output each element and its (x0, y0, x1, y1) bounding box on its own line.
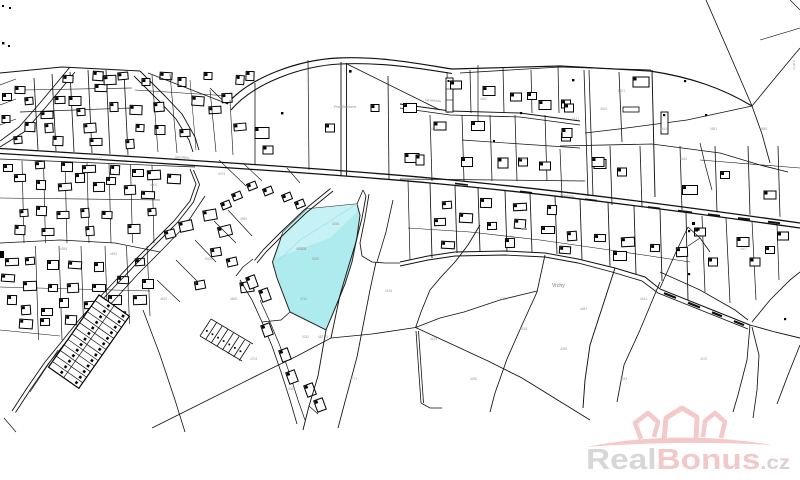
svg-text:5258: 5258 (332, 222, 339, 226)
svg-text:4877/3: 4877/3 (318, 335, 328, 339)
svg-text:Vrchy: Vrchy (552, 283, 565, 289)
svg-text:4296: 4296 (470, 377, 477, 381)
svg-text:4814: 4814 (660, 127, 667, 131)
svg-text:Pod Borkem: Pod Borkem (334, 104, 357, 109)
svg-text:4877/1: 4877/1 (296, 247, 306, 251)
svg-text:4888: 4888 (760, 127, 767, 131)
svg-text:5073: 5073 (430, 127, 437, 131)
svg-text:4407: 4407 (740, 247, 747, 251)
svg-text:5369: 5369 (288, 387, 295, 391)
svg-text:Sokolska: Sokolska (175, 155, 189, 160)
svg-text:4629: 4629 (160, 297, 167, 301)
svg-text:4592: 4592 (110, 252, 117, 256)
svg-text:4481: 4481 (580, 307, 587, 311)
svg-text:4962: 4962 (480, 97, 487, 101)
svg-text:4851: 4851 (710, 127, 717, 131)
svg-text:4370: 4370 (700, 357, 707, 361)
svg-text:5184: 5184 (680, 157, 687, 161)
svg-text:5147: 5147 (572, 117, 579, 121)
svg-text:4777: 4777 (350, 377, 357, 381)
svg-text:a neco: a neco (792, 60, 796, 70)
svg-text:4925: 4925 (600, 107, 607, 111)
svg-text:4333: 4333 (620, 377, 627, 381)
svg-text:RealBonus.cz: RealBonus.cz (586, 444, 790, 476)
svg-text:4037: 4037 (95, 157, 102, 161)
svg-text:4555: 4555 (60, 247, 67, 251)
svg-text:4000: 4000 (150, 183, 157, 187)
svg-text:4185: 4185 (430, 337, 437, 341)
svg-text:4259: 4259 (560, 347, 567, 351)
svg-text:5221: 5221 (618, 89, 625, 93)
svg-text:4222: 4222 (500, 297, 507, 301)
svg-text:4703: 4703 (250, 357, 257, 361)
svg-text:4518: 4518 (520, 327, 527, 331)
svg-text:4074: 4074 (218, 172, 225, 176)
svg-text:5332: 5332 (302, 335, 309, 339)
svg-text:4740: 4740 (300, 297, 307, 301)
svg-text:5110: 5110 (520, 157, 527, 161)
svg-text:4444: 4444 (640, 297, 647, 301)
svg-text:5036: 5036 (205, 257, 212, 261)
svg-text:4666: 4666 (230, 297, 237, 301)
svg-text:4999: 4999 (240, 217, 247, 221)
svg-text:4148: 4148 (385, 289, 392, 293)
svg-text:5295: 5295 (312, 257, 319, 261)
